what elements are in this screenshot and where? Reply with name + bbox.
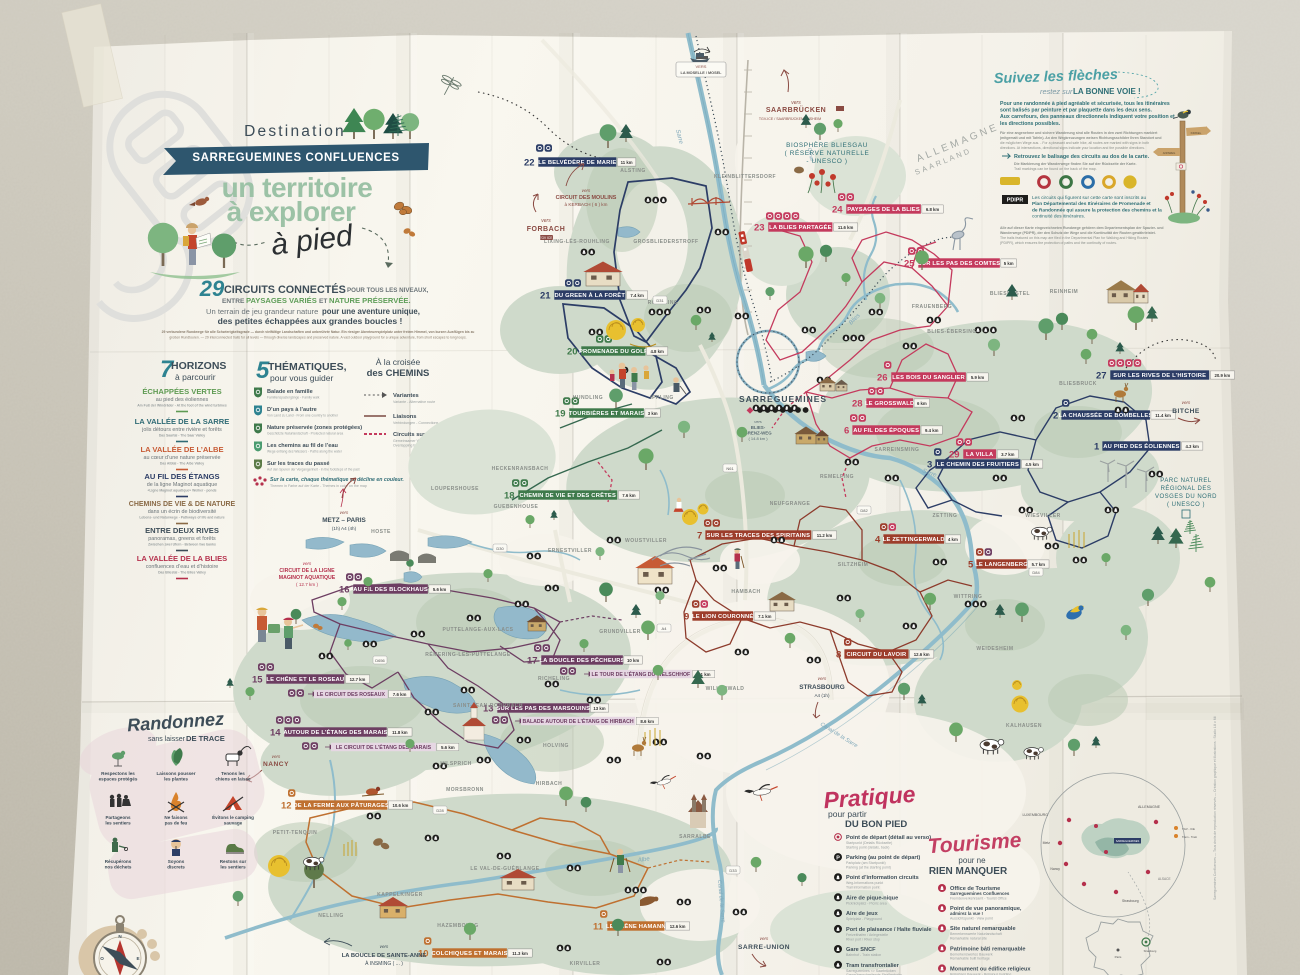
svg-text:Parkplatz (am Startpunkt): Parkplatz (am Startpunkt) xyxy=(846,861,886,865)
svg-text:SILTZHEIM: SILTZHEIM xyxy=(838,562,869,568)
svg-text:au pied des éoliennes: au pied des éoliennes xyxy=(156,397,209,403)
svg-text:Sur la carte, chaque thématiqu: Sur la carte, chaque thématique se décli… xyxy=(270,477,404,483)
svg-text:D33: D33 xyxy=(729,868,737,873)
svg-text:À la croisée: À la croisée xyxy=(376,357,421,367)
svg-text:BIOSPHÈRE BLIESGAU: BIOSPHÈRE BLIESGAU xyxy=(786,140,868,149)
svg-text:PARC NATUREL: PARC NATUREL xyxy=(1160,478,1212,484)
svg-text:- UNESCO ): - UNESCO ) xyxy=(806,158,847,165)
svg-text:vers: vers xyxy=(272,754,281,759)
svg-text:HORIZONS: HORIZONS xyxy=(171,360,226,372)
svg-text:Zwischen zwei Ufern - Between: Zwischen zwei Ufern - Between two banks xyxy=(148,543,216,547)
svg-text:( 12.7 km ): ( 12.7 km ) xyxy=(296,582,318,587)
svg-text:27: 27 xyxy=(1096,370,1107,381)
svg-text:sauvage: sauvage xyxy=(224,820,243,825)
svg-text:HOLVING: HOLVING xyxy=(543,743,569,749)
svg-text:(1h) A4 (4h): (1h) A4 (4h) xyxy=(332,526,357,531)
svg-text:CIRCUIT DU LAVOIR: CIRCUIT DU LAVOIR xyxy=(846,652,907,658)
svg-text:SARREGUEMINES: SARREGUEMINES xyxy=(739,394,827,404)
svg-text:Auf den Spuren der Vergangenhe: Auf den Spuren der Vergangenheit - In th… xyxy=(267,468,360,472)
svg-text:River port / River stop: River port / River stop xyxy=(846,937,880,941)
svg-text:DU GREEN À LA FORÊT: DU GREEN À LA FORÊT xyxy=(555,291,626,299)
svg-text:D656: D656 xyxy=(375,658,385,663)
svg-text:Retrouvez le balisage des circ: Retrouvez le balisage des circuits au do… xyxy=(1014,154,1150,160)
svg-text:pour ne: pour ne xyxy=(958,856,986,865)
svg-text:D84: D84 xyxy=(1032,570,1040,575)
svg-text:Metz: Metz xyxy=(1043,841,1051,845)
svg-text:Die Markierung der Wanderwege: Die Markierung der Wanderwege finden Sie… xyxy=(1014,162,1137,166)
svg-text:LA VILLA: LA VILLA xyxy=(966,452,994,458)
svg-text:11.3 km: 11.3 km xyxy=(512,951,528,956)
svg-text:PDIPR: PDIPR xyxy=(1007,198,1024,204)
svg-text:22: 22 xyxy=(524,157,535,168)
svg-text:les sentiers: les sentiers xyxy=(105,820,131,825)
svg-text:( 14.8 km ): ( 14.8 km ) xyxy=(748,436,768,441)
svg-text:Sarreguemines Confluences — To: Sarreguemines Confluences — Tous droits … xyxy=(1213,716,1217,900)
svg-text:Trail markings can be found on: Trail markings can be found on the back … xyxy=(1014,167,1097,171)
svg-text:Partageons: Partageons xyxy=(105,815,130,820)
svg-text:Starting point (details, back): Starting point (details, back) xyxy=(846,845,889,849)
svg-text:LE BELVÉDÈRE DE MARIE: LE BELVÉDÈRE DE MARIE xyxy=(538,158,616,166)
svg-text:LE LANGENBERG: LE LANGENBERG xyxy=(975,562,1028,568)
svg-text:die möglichen Wege aus. - For: die möglichen Wege aus. - For a pleasant… xyxy=(1000,141,1149,145)
svg-text:LOUPERSHOUSE: LOUPERSHOUSE xyxy=(431,486,479,492)
svg-text:5: 5 xyxy=(968,559,974,570)
svg-text:Startpunkt (Details Rückseite): Startpunkt (Details Rückseite) xyxy=(846,841,892,845)
svg-text:4.8 km: 4.8 km xyxy=(650,349,664,354)
svg-text:11: 11 xyxy=(593,921,604,932)
svg-text:BALADE AUTOUR DE L’ÉTANG DE HI: BALADE AUTOUR DE L’ÉTANG DE HIRBACH xyxy=(523,717,634,725)
svg-text:WOUSTVILLER: WOUSTVILLER xyxy=(625,538,667,544)
svg-text:13 km: 13 km xyxy=(593,706,605,711)
svg-text:Liaisons: Liaisons xyxy=(393,414,417,420)
svg-text:SARREGUEMINES: SARREGUEMINES xyxy=(1116,839,1140,843)
svg-text:Récupérons: Récupérons xyxy=(105,859,132,864)
svg-text:RÉMERING-LÈS-PUTTELANGE: RÉMERING-LÈS-PUTTELANGE xyxy=(425,650,511,658)
svg-text:Am Fuß der Windräder - At the: Am Fuß der Windräder - At the foot of th… xyxy=(137,404,227,408)
svg-text:Wanderwege (PDIPR), der den Sc: Wanderwege (PDIPR), der den Schutz der W… xyxy=(1000,231,1156,235)
svg-text:vers: vers xyxy=(818,676,827,681)
svg-text:Respectons les: Respectons les xyxy=(101,771,135,776)
svg-text:2: 2 xyxy=(1053,410,1058,421)
svg-text:vers: vers xyxy=(1182,400,1191,405)
svg-text:REMELFING: REMELFING xyxy=(820,474,854,480)
svg-text:WIESVILLER: WIESVILLER xyxy=(1025,513,1061,519)
svg-text:LA VALLÉE DE LA SARRE: LA VALLÉE DE LA SARRE xyxy=(135,417,230,426)
svg-text:AU FIL DES ÉTANGS: AU FIL DES ÉTANGS xyxy=(144,472,219,481)
svg-text:Paris: Paris xyxy=(1115,955,1122,959)
svg-text:PROMENADE DU GOLF: PROMENADE DU GOLF xyxy=(579,349,648,355)
svg-text:ALSACE: ALSACE xyxy=(1158,877,1171,881)
svg-text:Sarreguemines Confluences: Sarreguemines Confluences xyxy=(950,891,1010,896)
svg-text:à KERBACH ( 6 ) km: à KERBACH ( 6 ) km xyxy=(565,202,608,207)
svg-text:BITCHE: BITCHE xyxy=(1172,408,1200,415)
svg-text:4 km: 4 km xyxy=(948,537,958,542)
svg-text:PETIT-TENQUIN: PETIT-TENQUIN xyxy=(273,830,318,836)
svg-text:TGV-ICE / SAARBRÜCKEN-ENSHEIM: TGV-ICE / SAARBRÜCKEN-ENSHEIM xyxy=(759,117,821,121)
svg-text:Sarreguemines <> Saarbrücken: Sarreguemines <> Saarbrücken xyxy=(846,969,896,973)
svg-text:des petites échappées aux gran: des petites échappées aux grandes boucle… xyxy=(218,316,403,326)
svg-text:Variante - Alternative route: Variante - Alternative route xyxy=(393,400,435,404)
svg-text:LES BOIS DU SANGLIER: LES BOIS DU SANGLIER xyxy=(892,375,965,381)
svg-text:KIRVILLER: KIRVILLER xyxy=(570,961,601,967)
svg-text:Bemerkenswerte Naturlandschaft: Bemerkenswerte Naturlandschaft xyxy=(950,932,1002,936)
svg-text:LE ZETTINGERWALD: LE ZETTINGERWALD xyxy=(883,537,945,543)
svg-text:5.6 km: 5.6 km xyxy=(441,745,455,750)
svg-text:KAPPELKINGER: KAPPELKINGER xyxy=(377,892,423,898)
svg-text:4: 4 xyxy=(875,534,881,545)
svg-text:Themen in Farbe auf der Karte: Themen in Farbe auf der Karte - Themes i… xyxy=(270,484,367,488)
svg-text:Für eine angenehme und sichere: Für eine angenehme und sichere Wanderung… xyxy=(1000,131,1158,135)
svg-text:11 km: 11 km xyxy=(621,160,633,165)
svg-text:14: 14 xyxy=(270,727,281,738)
svg-text:GUEBENHOUSE: GUEBENHOUSE xyxy=(494,504,539,510)
svg-text:dans un écrin de biodiversité: dans un écrin de biodiversité xyxy=(148,509,217,515)
svg-text:BLIES-ÉBERSING: BLIES-ÉBERSING xyxy=(927,327,977,335)
svg-text:Verbindungen - Connections: Verbindungen - Connections xyxy=(393,421,439,425)
svg-text:les plantes: les plantes xyxy=(164,776,188,781)
svg-text:BLIES-: BLIES- xyxy=(751,425,766,430)
svg-text:ALSTING: ALSTING xyxy=(620,168,645,174)
svg-text:VOSGES DU NORD: VOSGES DU NORD xyxy=(1155,494,1217,500)
svg-text:(PDIPR), which ensures the pro: (PDIPR), which ensures the protection of… xyxy=(1000,241,1117,245)
svg-text:Ne faisons: Ne faisons xyxy=(164,815,188,820)
svg-text:vers: vers xyxy=(582,188,591,193)
svg-text:10 km: 10 km xyxy=(627,658,639,663)
svg-text:admirez la vue !: admirez la vue ! xyxy=(950,911,983,916)
svg-text:11.6 km: 11.6 km xyxy=(838,225,854,230)
svg-text:28: 28 xyxy=(852,398,863,409)
svg-text:de Randonnée qui assure la pro: de Randonnée qui assure la protection de… xyxy=(1032,207,1162,213)
svg-text:8: 8 xyxy=(836,649,841,660)
svg-text:12.7 km: 12.7 km xyxy=(350,677,366,682)
svg-text:Les chemins au fil de l’eau: Les chemins au fil de l’eau xyxy=(267,443,338,449)
svg-text:Soyons: Soyons xyxy=(168,859,185,864)
svg-text:directions. At intersections,: directions. At intersections, directiona… xyxy=(1000,146,1145,150)
svg-text:8.6 km: 8.6 km xyxy=(640,719,654,724)
svg-text:au cœur d’une nature préservée: au cœur d’une nature préservée xyxy=(143,455,220,461)
svg-text:11.4 km: 11.4 km xyxy=(1155,413,1171,418)
svg-text:E: E xyxy=(136,956,139,961)
svg-text:7.6 km: 7.6 km xyxy=(622,493,636,498)
svg-text:Fremdenverkehrsamt - Tourist O: Fremdenverkehrsamt - Tourist Office xyxy=(950,896,1007,900)
svg-text:HAMBACH: HAMBACH xyxy=(731,589,760,595)
svg-text:THÉMATIQUES,: THÉMATIQUES, xyxy=(268,360,347,373)
svg-text:BLIESBRUCK: BLIESBRUCK xyxy=(1059,381,1097,387)
svg-text:ÉCHAPPÉES VERTES: ÉCHAPPÉES VERTES xyxy=(142,387,221,396)
svg-text:20.9 km: 20.9 km xyxy=(1214,373,1230,378)
svg-text:5.9 km: 5.9 km xyxy=(971,375,985,380)
svg-text:29: 29 xyxy=(949,449,960,460)
svg-text:LA BONNE VOIE !: LA BONNE VOIE ! xyxy=(1073,87,1141,96)
svg-text:Geschützte Naturlandschaft - P: Geschützte Naturlandschaft - Protected n… xyxy=(267,432,343,436)
svg-text:GROSBLIEDERSTROFF: GROSBLIEDERSTROFF xyxy=(633,239,698,245)
svg-text:9.4 km: 9.4 km xyxy=(925,428,939,433)
svg-text:TOURBIÈRES ET MARAIS: TOURBIÈRES ET MARAIS xyxy=(569,409,644,417)
svg-text:des CHEMINS: des CHEMINS xyxy=(367,368,430,379)
svg-text:Das Saartal - The Saar Valley: Das Saartal - The Saar Valley xyxy=(159,434,205,438)
svg-text:9: 9 xyxy=(684,611,689,622)
svg-text:DE TRACE: DE TRACE xyxy=(186,734,225,743)
svg-text:6 km: 6 km xyxy=(917,401,927,406)
svg-text:DE LA FERME AUX PÂTURAGES: DE LA FERME AUX PÂTURAGES xyxy=(293,802,389,809)
svg-text:RIEN MANQUER: RIEN MANQUER xyxy=(929,866,1008,877)
svg-text:Strasbourg: Strasbourg xyxy=(1122,899,1139,903)
svg-text:Nancy: Nancy xyxy=(1050,867,1060,871)
svg-text:restez sur: restez sur xyxy=(1040,87,1073,96)
svg-text:Destination: Destination xyxy=(244,123,346,140)
svg-text:Restons sur: Restons sur xyxy=(220,859,247,864)
svg-text:WITTRING: WITTRING xyxy=(954,594,983,600)
svg-text:6: 6 xyxy=(844,425,849,436)
svg-text:Parking (at the starting point: Parking (at the starting point) xyxy=(846,866,891,870)
svg-text:10.6 km: 10.6 km xyxy=(393,803,409,808)
svg-text:FORBACH: FORBACH xyxy=(527,226,566,233)
svg-text:NATURE PRÉSERVÉE.: NATURE PRÉSERVÉE. xyxy=(329,296,411,305)
svg-text:Évitons le camping: Évitons le camping xyxy=(212,813,254,820)
svg-text:12.6 km: 12.6 km xyxy=(670,924,686,929)
svg-text:LA BOUCLE DE SAINTE-ANNE: LA BOUCLE DE SAINTE-ANNE xyxy=(342,953,427,959)
svg-text:Laissons pousser: Laissons pousser xyxy=(156,771,195,776)
svg-text:4.5 km: 4.5 km xyxy=(1025,462,1039,467)
svg-text:ENTRE DEUX RIVES: ENTRE DEUX RIVES xyxy=(145,526,219,535)
svg-text:À INSMING ( ... ): À INSMING ( ... ) xyxy=(365,960,403,967)
svg-text:(mitgemalt und mit Tafeln). An: (mitgemalt und mit Tafeln). An den Wegkr… xyxy=(1000,136,1162,140)
svg-text:N61: N61 xyxy=(726,466,734,471)
svg-text:5 km: 5 km xyxy=(1004,261,1014,266)
svg-text:Spielplatz - Playground: Spielplatz - Playground xyxy=(846,917,882,921)
svg-text:Plan Départemental des Itinéra: Plan Départemental des Itinéraires de Pr… xyxy=(1032,201,1151,207)
svg-text:6.8 km: 6.8 km xyxy=(926,207,940,212)
svg-text:Sur les traces du passé: Sur les traces du passé xyxy=(267,461,330,467)
svg-text:Von Land zu Land - From one co: Von Land zu Land - From one country to a… xyxy=(267,414,339,418)
svg-text:A4 (1h): A4 (1h) xyxy=(814,693,830,698)
svg-text:LE CHÊNE ET LE ROSEAU: LE CHÊNE ET LE ROSEAU xyxy=(266,675,344,683)
svg-text:Aux carrefours, des panneaux d: Aux carrefours, des panneaux directionne… xyxy=(1000,114,1175,120)
svg-text:AUTOUR DE L’ÉTANG DES MARAIS: AUTOUR DE L’ÉTANG DES MARAIS xyxy=(283,728,387,736)
svg-text:vers: vers xyxy=(380,944,389,949)
svg-text:METZ – PARIS: METZ – PARIS xyxy=(322,517,366,524)
svg-text:FRAUENBERG: FRAUENBERG xyxy=(912,304,952,310)
svg-text:24: 24 xyxy=(832,204,843,215)
svg-text:POUR TOUS LES NIVEAUX,: POUR TOUS LES NIVEAUX, xyxy=(347,287,429,294)
svg-text:LA BOUCLE DES PÊCHEURS: LA BOUCLE DES PÊCHEURS xyxy=(539,656,624,664)
svg-text:Trail information point: Trail information point xyxy=(846,886,880,890)
svg-text:LA MOSELLE / MOSEL: LA MOSELLE / MOSEL xyxy=(681,71,723,75)
svg-text:7.4 km: 7.4 km xyxy=(630,293,644,298)
svg-text:HUNDLING: HUNDLING xyxy=(573,395,603,401)
svg-text:großen Rundtouren. — 29 interc: großen Rundtouren. — 29 interconnected t… xyxy=(169,336,466,340)
svg-text:7.6 km: 7.6 km xyxy=(393,692,407,697)
svg-text:jolis détours entre rivière et: jolis détours entre rivière et forêts xyxy=(141,427,222,433)
svg-text:15: 15 xyxy=(252,674,263,685)
svg-text:vers: vers xyxy=(791,100,801,106)
svg-text:D’un pays à l’autre: D’un pays à l’autre xyxy=(267,407,317,413)
svg-text:ERNESTVILLER: ERNESTVILLER xyxy=(548,548,592,554)
svg-text:PAYSAGES DE LA BLIES: PAYSAGES DE LA BLIES xyxy=(847,207,920,213)
svg-text:29 verbundene Rundwege für all: 29 verbundene Rundwege für alle Schwieri… xyxy=(162,330,475,334)
svg-text:D82: D82 xyxy=(860,508,868,513)
svg-text:ZETTING: ZETTING xyxy=(933,513,958,519)
svg-text:ENTRE: ENTRE xyxy=(222,298,245,305)
svg-text:LE CIRCUIT DES ROSEAUX: LE CIRCUIT DES ROSEAUX xyxy=(317,692,386,698)
svg-text:HIRBACH: HIRBACH xyxy=(536,781,563,787)
svg-text:MORSBRONN: MORSBRONN xyxy=(446,787,484,793)
svg-text:The trails featured on this ma: The trails featured on this map are file… xyxy=(1000,236,1148,240)
svg-text:AU FIL DES BLOCKHAUS: AU FIL DES BLOCKHAUS xyxy=(353,587,428,593)
svg-text:vers: vers xyxy=(541,218,551,224)
svg-text:LE CHEMIN DES FRUITIERS: LE CHEMIN DES FRUITIERS xyxy=(937,462,1019,468)
svg-text:LE VAL-DE-GUÉBLANGE: LE VAL-DE-GUÉBLANGE xyxy=(470,864,539,872)
svg-text:LE GROSSWALD: LE GROSSWALD xyxy=(865,401,914,407)
svg-text:Tenons les: Tenons les xyxy=(221,771,245,776)
svg-text:RICHELING: RICHELING xyxy=(538,676,570,682)
svg-text:26: 26 xyxy=(877,372,888,383)
svg-text:CHEMINS DE VIE & DE NATURE: CHEMINS DE VIE & DE NATURE xyxy=(129,501,236,508)
svg-text:Bahnhof - Train station: Bahnhof - Train station xyxy=(846,953,881,957)
svg-text:7.1 km: 7.1 km xyxy=(758,614,772,619)
svg-text:Aussichtspunkt - View point: Aussichtspunkt - View point xyxy=(950,917,993,921)
svg-text:O: O xyxy=(100,956,104,961)
svg-text:pas de feu: pas de feu xyxy=(165,820,188,825)
svg-text:NANCY: NANCY xyxy=(263,761,289,768)
svg-text:chiens en laisse: chiens en laisse xyxy=(215,776,251,781)
svg-text:Remarkable built heritage: Remarkable built heritage xyxy=(950,957,990,961)
svg-text:A4: A4 xyxy=(662,626,668,631)
svg-text:CIRCUIT DES MOULINS: CIRCUIT DES MOULINS xyxy=(556,195,617,201)
svg-text:les directions possibles.: les directions possibles. xyxy=(1000,121,1061,127)
svg-text:LA VALLÉE DE L’ALBE: LA VALLÉE DE L’ALBE xyxy=(140,445,223,454)
svg-text:Tram - Train: Tram - Train xyxy=(1182,835,1198,839)
svg-text:Familienspaziergänge - Family: Familienspaziergänge - Family walk xyxy=(267,396,320,400)
svg-text:5.6 km: 5.6 km xyxy=(433,587,447,592)
svg-text:P: P xyxy=(836,856,840,862)
svg-text:HECKENRANSBACH: HECKENRANSBACH xyxy=(492,466,549,472)
svg-text:Weg-Informations punkt: Weg-Informations punkt xyxy=(846,881,883,885)
svg-text:vers: vers xyxy=(303,561,312,566)
svg-text:HILSPRICH: HILSPRICH xyxy=(440,761,471,767)
svg-text:LE LION COURONNÉ: LE LION COURONNÉ xyxy=(692,612,754,620)
svg-text:vers: vers xyxy=(760,936,769,941)
svg-text:CIRCUIT DE LA LIGNE: CIRCUIT DE LA LIGNE xyxy=(279,568,335,574)
svg-text:LA VALLÉE DE LA BLIES: LA VALLÉE DE LA BLIES xyxy=(137,554,227,563)
svg-text:les sentiers: les sentiers xyxy=(220,864,246,869)
svg-text:LE TOUR DE L’ÉTANG DU WELSCHHO: LE TOUR DE L’ÉTANG DU WELSCHHOF xyxy=(592,670,691,678)
svg-text:vers: vers xyxy=(340,510,349,515)
svg-text:confluences d’eau et d’histoir: confluences d’eau et d’histoire xyxy=(146,564,219,570)
svg-text:AU PIED DES ÉOLIENNES: AU PIED DES ÉOLIENNES xyxy=(1103,442,1179,450)
svg-text:WEIDESHEIM: WEIDESHEIM xyxy=(976,646,1013,652)
svg-text:25: 25 xyxy=(904,258,915,269)
svg-text:pour partir: pour partir xyxy=(828,809,867,819)
svg-text:STRASBOURG: STRASBOURG xyxy=(799,684,844,691)
svg-text:NELLING: NELLING xyxy=(318,913,343,919)
svg-text:SARREINSMING: SARREINSMING xyxy=(875,447,920,453)
svg-text:SUR LES PAS DES COMTES: SUR LES PAS DES COMTES xyxy=(918,261,1001,267)
svg-text:AU FIL DES ÉPOQUES: AU FIL DES ÉPOQUES xyxy=(853,426,919,434)
svg-text:Pour une randonnée à pied agré: Pour une randonnée à pied agréable et sé… xyxy=(1000,101,1170,107)
svg-text:Wege entlang des Wassers - Pat: Wege entlang des Wassers - Paths along t… xyxy=(267,450,343,454)
svg-text:Remarkable natural site: Remarkable natural site xyxy=(950,937,987,941)
svg-text:ALLEMAGNE: ALLEMAGNE xyxy=(1138,805,1161,809)
svg-text:Strasbourg: Strasbourg xyxy=(1144,949,1157,953)
svg-text:7: 7 xyxy=(697,530,702,541)
svg-text:pour une aventure unique,: pour une aventure unique, xyxy=(322,307,420,316)
svg-text:SARREGUEMINES CONFLUENCES: SARREGUEMINES CONFLUENCES xyxy=(192,152,399,164)
svg-text:IPPLING: IPPLING xyxy=(650,395,674,401)
svg-text:LA BLIES PARTAGÉE: LA BLIES PARTAGÉE xyxy=(769,223,832,231)
svg-text:KLEINBLITTERSDORF: KLEINBLITTERSDORF xyxy=(714,174,776,180)
svg-text:ANNWEG: ANNWEG xyxy=(1163,151,1176,155)
svg-text:11.8 km: 11.8 km xyxy=(392,730,408,735)
svg-text:pour vous guider: pour vous guider xyxy=(270,373,333,383)
svg-text:D28: D28 xyxy=(436,808,444,813)
svg-text:REINHEIM: REINHEIM xyxy=(1050,289,1078,295)
svg-text:KALHAUSEN: KALHAUSEN xyxy=(1006,723,1042,729)
svg-text:11.2 km: 11.2 km xyxy=(817,533,833,538)
svg-text:SARRE-UNION: SARRE-UNION xyxy=(738,944,790,951)
svg-text:4.3 km: 4.3 km xyxy=(1185,444,1199,449)
svg-text:Das Bliestal - The Blies Valle: Das Bliestal - The Blies Valley xyxy=(158,571,206,575)
svg-text:KIRKEL: KIRKEL xyxy=(1191,131,1202,135)
svg-text:«Ligne Maginot aquatique» Weih: «Ligne Maginot aquatique» Weiher - ponds xyxy=(147,489,216,493)
svg-text:DU BON PIED: DU BON PIED xyxy=(845,819,907,830)
svg-text:SAINT-JEAN-ROHRBACH: SAINT-JEAN-ROHRBACH xyxy=(453,703,523,709)
svg-text:GRENZ-WEG: GRENZ-WEG xyxy=(744,431,772,436)
svg-text:16: 16 xyxy=(339,584,350,595)
svg-text:continuité des itinéraires.: continuité des itinéraires. xyxy=(1032,214,1085,220)
svg-text:1: 1 xyxy=(1094,441,1100,452)
svg-text:Freizeithafen / Anlegestelle: Freizeithafen / Anlegestelle xyxy=(846,933,888,937)
svg-text:3: 3 xyxy=(927,459,932,470)
svg-text:Das Albtal - The Albe Valley: Das Albtal - The Albe Valley xyxy=(160,462,204,466)
svg-text:Bemerkenswertes Bauwerk: Bemerkenswertes Bauwerk xyxy=(950,952,993,956)
svg-text:de la ligne Maginot aquatique: de la ligne Maginot aquatique xyxy=(147,482,217,488)
svg-text:MAGINOT AQUATIQUE: MAGINOT AQUATIQUE xyxy=(279,575,336,581)
svg-text:Alle auf dieser Karte eingezei: Alle auf dieser Karte eingezeichneten Ru… xyxy=(1000,226,1164,230)
svg-text:23: 23 xyxy=(754,222,765,233)
svg-text:discrets: discrets xyxy=(167,864,185,869)
svg-text:Lebens- und Naturwege - Pathwa: Lebens- und Naturwege - Pathways of life… xyxy=(139,516,224,520)
svg-text:SUR LES TRACES DES SPIRITAINS: SUR LES TRACES DES SPIRITAINS xyxy=(707,533,811,539)
svg-text:LIXING-LÈS-ROUHLING: LIXING-LÈS-ROUHLING xyxy=(544,237,610,245)
svg-text:HOSTE: HOSTE xyxy=(371,529,391,535)
svg-text:Balade en famille: Balade en famille xyxy=(267,389,313,395)
svg-text:CIRCUITS CONNECTÉS: CIRCUITS CONNECTÉS xyxy=(224,283,346,296)
svg-text:Les circuits qui figurent sur: Les circuits qui figurent sur cette cart… xyxy=(1032,195,1146,201)
svg-text:19: 19 xyxy=(555,408,566,419)
svg-text:LE CIRCUIT DE L’ÉTANG DES MARA: LE CIRCUIT DE L’ÉTANG DES MARAIS xyxy=(336,743,432,751)
svg-text:PAYSAGES VARIÉS: PAYSAGES VARIÉS xyxy=(246,296,317,305)
svg-text:Un terrain de jeu grandeur nat: Un terrain de jeu grandeur nature xyxy=(206,307,318,316)
svg-text:( UNESCO ): ( UNESCO ) xyxy=(1167,502,1205,508)
svg-text:21: 21 xyxy=(540,290,551,301)
svg-text:LUXEMBOURG: LUXEMBOURG xyxy=(1022,813,1048,817)
svg-text:Variantes: Variantes xyxy=(393,393,419,399)
svg-text:SARRALBE: SARRALBE xyxy=(679,834,711,840)
svg-text:20: 20 xyxy=(567,346,578,357)
svg-text:D31: D31 xyxy=(656,298,664,303)
svg-text:espaces protégés: espaces protégés xyxy=(99,776,138,781)
svg-text:Nature préservée (zones protég: Nature préservée (zones protégées) xyxy=(267,425,362,431)
svg-text:SAARBRÜCKEN: SAARBRÜCKEN xyxy=(766,105,826,114)
svg-text:12.6 km: 12.6 km xyxy=(914,652,930,657)
svg-text:D30: D30 xyxy=(496,546,504,551)
svg-text:NEUFGRANGE: NEUFGRANGE xyxy=(770,501,811,507)
svg-text:nos déchets: nos déchets xyxy=(105,864,132,869)
svg-text:17: 17 xyxy=(527,655,538,666)
svg-text:( RÉSERVE NATURELLE: ( RÉSERVE NATURELLE xyxy=(785,148,870,157)
svg-text:TGV ICE: TGV ICE xyxy=(540,236,553,240)
